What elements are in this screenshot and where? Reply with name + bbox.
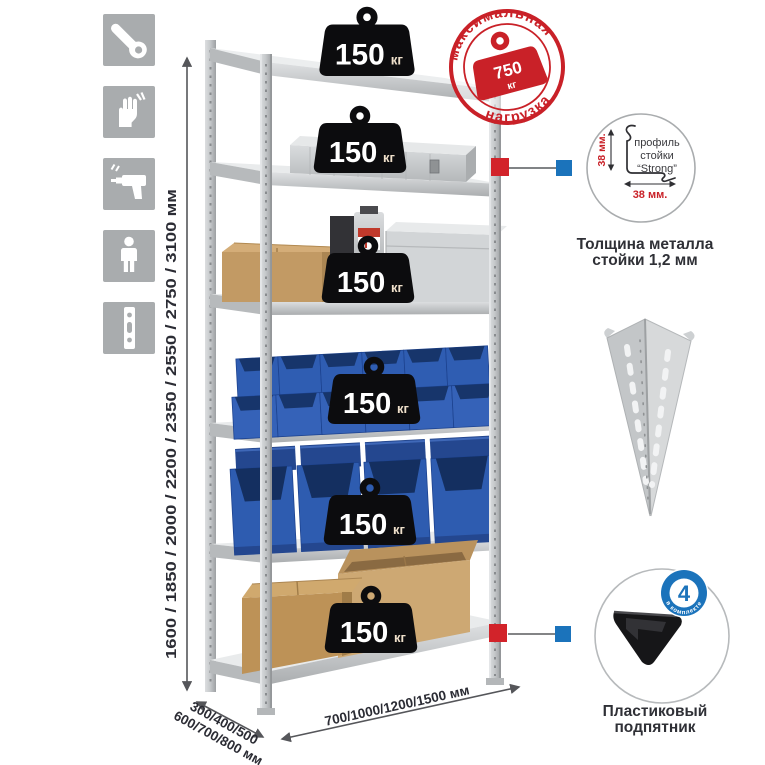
profile-caption-line2: стойки 1,2 мм xyxy=(592,252,697,269)
foot-caption: Пластиковый подпятник xyxy=(585,704,725,736)
callout-profile xyxy=(491,158,572,176)
load-badge-shelf2: 150 кг xyxy=(314,109,406,173)
rack-scene: 150 кг 150 кг 150 кг 150 кг 150 кг xyxy=(0,0,765,765)
svg-text:кг: кг xyxy=(383,150,396,165)
blue-marker-bottom xyxy=(555,626,571,642)
callout-foot xyxy=(489,624,571,642)
svg-text:150: 150 xyxy=(340,617,388,649)
svg-text:38 мм.: 38 мм. xyxy=(633,189,668,201)
red-marker-bottom xyxy=(489,624,507,642)
svg-text:1600 / 1850 / 2000 / 2200 / 23: 1600 / 1850 / 2000 / 2200 / 2350 / 2550 … xyxy=(163,189,180,659)
foot-caption-line2: подпятник xyxy=(614,719,695,736)
depth-dimension: 300/400/500 600/700/800 мм xyxy=(171,694,273,765)
svg-text:150: 150 xyxy=(337,267,385,299)
profile-caption-line1: Толщина металла xyxy=(577,236,714,253)
svg-text:кг: кг xyxy=(397,401,410,416)
svg-text:150: 150 xyxy=(339,509,387,541)
svg-text:150: 150 xyxy=(329,137,377,169)
svg-text:4: 4 xyxy=(678,581,691,606)
svg-text:700/1000/1200/1500 мм: 700/1000/1200/1500 мм xyxy=(323,682,470,728)
red-marker-top xyxy=(491,158,509,176)
svg-text:38 мм.: 38 мм. xyxy=(596,133,608,166)
svg-text:стойки: стойки xyxy=(640,150,674,162)
foot-caption-line1: Пластиковый xyxy=(603,703,708,720)
svg-text:кг: кг xyxy=(391,280,404,295)
svg-text:“Strong”: “Strong” xyxy=(637,163,677,175)
profile-detail-circle: 38 мм. 38 мм. профиль стойки “Strong” xyxy=(587,114,695,222)
profile-caption: Толщина металла стойки 1,2 мм xyxy=(570,237,720,269)
blue-marker-top xyxy=(556,160,572,176)
corner-post-image xyxy=(604,319,694,516)
product-infographic: 150 кг 150 кг 150 кг 150 кг 150 кг xyxy=(0,0,765,765)
svg-text:кг: кг xyxy=(394,630,407,645)
svg-text:150: 150 xyxy=(335,39,385,72)
height-dimension: 1600 / 1850 / 2000 / 2200 / 2350 / 2550 … xyxy=(163,58,187,690)
max-load-stamp: 750 кг максимальная нагрузка xyxy=(435,0,577,139)
svg-text:150: 150 xyxy=(343,388,391,420)
width-dimension: 700/1000/1200/1500 мм xyxy=(282,682,519,739)
svg-text:кг: кг xyxy=(393,522,406,537)
svg-text:профиль: профиль xyxy=(634,137,680,149)
svg-text:кг: кг xyxy=(391,53,404,68)
load-badge-shelf1: 150 кг xyxy=(319,10,414,76)
kit-count-badge: 4 в комплекте xyxy=(660,569,709,618)
